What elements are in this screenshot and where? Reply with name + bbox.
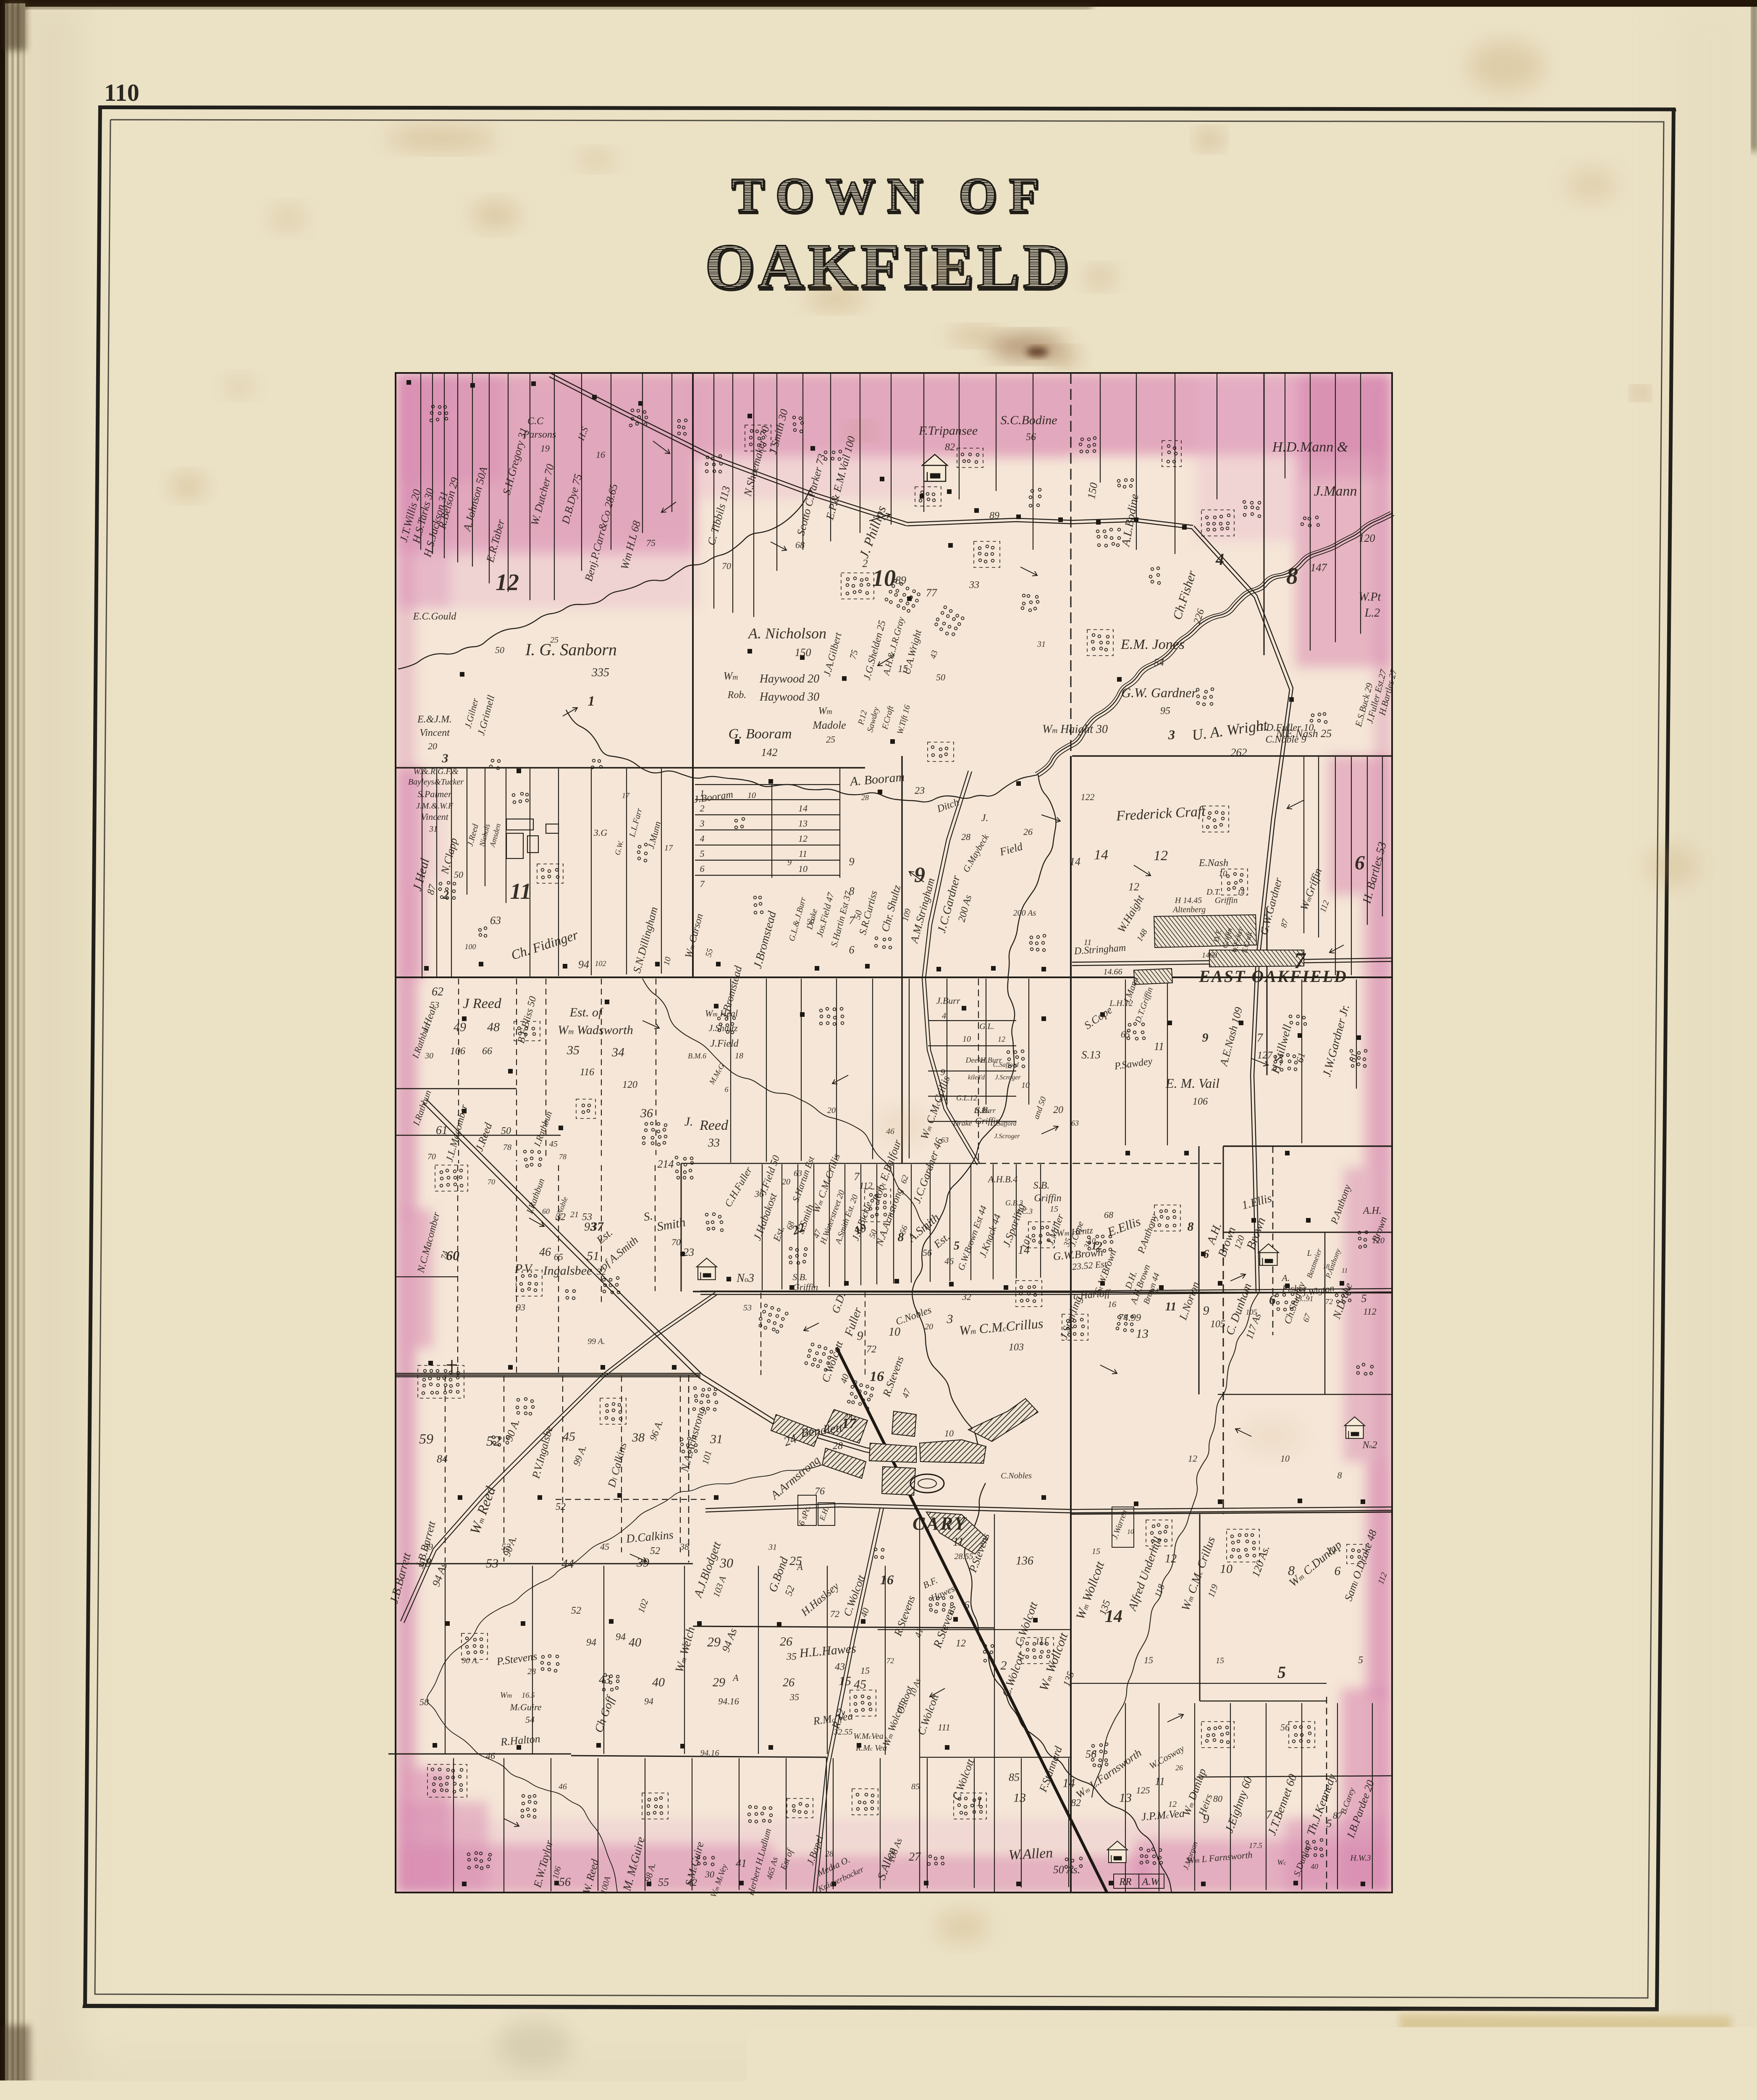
svg-text:13: 13	[1136, 1327, 1149, 1341]
svg-text:31: 31	[1037, 640, 1046, 649]
svg-text:72: 72	[866, 1344, 876, 1355]
svg-text:C.Safford: C.Safford	[991, 1120, 1017, 1127]
svg-text:5: 5	[954, 1239, 960, 1252]
svg-text:54: 54	[1154, 657, 1164, 668]
svg-text:Drake: Drake	[953, 1119, 972, 1127]
svg-text:26: 26	[1023, 827, 1033, 837]
svg-text:36: 36	[640, 1106, 653, 1120]
svg-text:78: 78	[559, 1152, 566, 1161]
svg-text:J.Scroger: J.Scroger	[994, 1133, 1020, 1140]
svg-text:16.5: 16.5	[522, 1691, 535, 1699]
svg-text:W.McVea: W.McVea	[853, 1732, 884, 1741]
svg-text:30: 30	[705, 1869, 714, 1879]
svg-text:40: 40	[1311, 1862, 1318, 1871]
svg-text:10: 10	[1219, 869, 1227, 878]
svg-text:136: 136	[1016, 1554, 1033, 1567]
svg-text:14: 14	[1018, 1244, 1030, 1257]
svg-text:Griffin: Griffin	[1215, 896, 1238, 905]
svg-text:11: 11	[1154, 1040, 1164, 1053]
svg-text:G. Booram: G. Booram	[728, 726, 792, 742]
svg-text:12: 12	[1165, 1552, 1177, 1565]
svg-text:14: 14	[1062, 1776, 1075, 1790]
svg-text:10: 10	[1220, 1562, 1233, 1576]
svg-text:11: 11	[1155, 1775, 1165, 1788]
svg-text:72: 72	[830, 1609, 839, 1619]
svg-text:E.M. Jones: E.M. Jones	[1120, 637, 1185, 652]
svg-text:94: 94	[578, 958, 589, 971]
svg-text:56: 56	[1280, 1722, 1290, 1732]
svg-text:90 A.: 90 A.	[462, 1656, 479, 1665]
svg-text:25: 25	[826, 734, 835, 745]
svg-text:3: 3	[1168, 727, 1175, 742]
svg-text:Parsons: Parsons	[523, 429, 556, 440]
svg-text:Wm: Wm	[818, 706, 832, 717]
svg-text:23: 23	[683, 1246, 694, 1258]
svg-text:14: 14	[1237, 888, 1245, 896]
svg-text:44: 44	[1151, 1287, 1159, 1295]
svg-text:59: 59	[419, 1431, 433, 1447]
svg-text:26: 26	[1175, 1764, 1183, 1772]
svg-text:27: 27	[909, 1851, 921, 1864]
svg-text:S.C.Bodine: S.C.Bodine	[1001, 413, 1057, 427]
svg-text:52: 52	[571, 1605, 581, 1616]
svg-text:W.Pt: W.Pt	[1359, 591, 1382, 604]
svg-text:EAST OAKFIELD: EAST OAKFIELD	[1198, 967, 1348, 986]
svg-text:94: 94	[616, 1632, 626, 1643]
svg-text:Altenberg: Altenberg	[1172, 905, 1206, 914]
svg-text:142: 142	[761, 746, 778, 759]
svg-text:W.Allen: W.Allen	[1008, 1845, 1053, 1863]
svg-text:3: 3	[947, 1312, 953, 1326]
svg-text:E. M. Vail: E. M. Vail	[1165, 1076, 1219, 1091]
svg-text:15: 15	[839, 1674, 851, 1688]
svg-text:82: 82	[945, 442, 955, 453]
svg-text:80: 80	[1213, 1793, 1222, 1804]
svg-text:262: 262	[1231, 746, 1247, 759]
svg-text:4: 4	[1215, 550, 1224, 569]
svg-text:20: 20	[925, 1322, 933, 1331]
svg-text:14: 14	[798, 803, 808, 814]
svg-text:2: 2	[443, 889, 449, 902]
svg-text:I. G. Sanborn: I. G. Sanborn	[525, 640, 617, 659]
svg-text:55: 55	[658, 1876, 669, 1888]
svg-text:9: 9	[849, 856, 855, 868]
svg-text:44: 44	[561, 1557, 574, 1571]
svg-text:2: 2	[1001, 1659, 1007, 1672]
svg-text:46: 46	[486, 1751, 495, 1761]
svg-text:46: 46	[944, 1256, 954, 1266]
svg-text:18: 18	[735, 1051, 743, 1060]
svg-text:D.T.: D.T.	[1206, 887, 1221, 897]
svg-text:6: 6	[1355, 852, 1365, 874]
svg-text:12: 12	[1128, 881, 1139, 893]
svg-text:S.Palmer: S.Palmer	[417, 789, 452, 799]
svg-text:112: 112	[1363, 1306, 1376, 1317]
svg-text:56: 56	[923, 1247, 932, 1258]
svg-text:5: 5	[1327, 1817, 1332, 1830]
svg-text:150: 150	[795, 646, 811, 659]
svg-text:12: 12	[1154, 848, 1168, 864]
svg-text:53: 53	[486, 1557, 498, 1570]
svg-text:33: 33	[708, 1137, 720, 1150]
svg-text:OAKFIELD: OAKFIELD	[705, 231, 1073, 302]
svg-text:28: 28	[844, 1412, 852, 1422]
svg-text:61: 61	[436, 1124, 448, 1137]
svg-text:100: 100	[465, 942, 476, 951]
svg-text:11: 11	[510, 879, 531, 904]
svg-text:9: 9	[1202, 1031, 1209, 1045]
svg-text:120: 120	[622, 1079, 637, 1090]
svg-text:23: 23	[915, 785, 925, 796]
svg-text:20: 20	[428, 741, 437, 751]
svg-text:34: 34	[611, 1045, 624, 1059]
svg-text:78: 78	[503, 1143, 511, 1152]
svg-text:6: 6	[849, 944, 855, 956]
svg-text:125: 125	[1136, 1785, 1150, 1795]
svg-text:15: 15	[898, 664, 908, 675]
svg-text:49: 49	[454, 1020, 466, 1034]
svg-text:Bayleys&Tucker: Bayleys&Tucker	[408, 777, 464, 787]
svg-text:28: 28	[833, 1441, 843, 1452]
svg-text:Ingalsbee: Ingalsbee	[543, 1264, 593, 1278]
svg-text:37: 37	[590, 1220, 604, 1234]
svg-text:20: 20	[782, 1177, 790, 1186]
svg-text:70: 70	[671, 1237, 681, 1247]
svg-text:15: 15	[1216, 1656, 1224, 1665]
svg-text:6: 6	[725, 1085, 729, 1094]
svg-text:9: 9	[914, 863, 925, 887]
svg-text:6: 6	[1269, 1292, 1276, 1307]
svg-text:H.Burr: H.Burr	[973, 1106, 996, 1115]
svg-text:26: 26	[783, 1676, 795, 1689]
svg-text:J.Shultz: J.Shultz	[708, 1023, 737, 1033]
svg-text:56: 56	[1086, 1748, 1096, 1760]
svg-text:112: 112	[859, 1180, 872, 1191]
svg-text:54: 54	[525, 1714, 535, 1725]
svg-text:1: 1	[976, 1795, 983, 1809]
svg-text:66: 66	[482, 1046, 492, 1057]
svg-text:Griffin: Griffin	[793, 1282, 818, 1292]
svg-text:CARY: CARY	[913, 1513, 967, 1534]
svg-text:45: 45	[563, 1430, 575, 1444]
svg-text:kileYd: kileYd	[968, 1074, 985, 1081]
svg-text:12: 12	[1188, 1453, 1197, 1464]
svg-text:94.16: 94.16	[700, 1748, 719, 1758]
svg-text:29: 29	[713, 1675, 725, 1689]
svg-text:70: 70	[427, 1152, 436, 1161]
svg-text:48: 48	[487, 1020, 500, 1034]
svg-text:11: 11	[1327, 1546, 1337, 1557]
svg-text:335: 335	[591, 666, 609, 679]
svg-text:147: 147	[1311, 562, 1327, 574]
svg-text:38: 38	[679, 1541, 689, 1552]
svg-text:P.V.: P.V.	[514, 1262, 533, 1276]
svg-text:106: 106	[450, 1046, 465, 1057]
svg-text:72: 72	[886, 1656, 894, 1665]
svg-text:127: 127	[1257, 1050, 1273, 1061]
svg-text:Rob.: Rob.	[727, 690, 747, 701]
svg-text:15: 15	[1050, 1205, 1058, 1214]
svg-text:94: 94	[586, 1637, 596, 1648]
svg-text:J.C.3: J.C.3	[1017, 1207, 1033, 1215]
svg-text:31: 31	[710, 1432, 723, 1446]
svg-text:N.E.Nash 25: N.E.Nash 25	[1276, 727, 1332, 740]
svg-text:11: 11	[799, 848, 807, 859]
svg-text:B.M.6: B.M.6	[688, 1052, 706, 1060]
svg-text:TOWN OF: TOWN OF	[732, 168, 1051, 223]
svg-text:F.Tripansee: F.Tripansee	[918, 424, 978, 438]
svg-text:93: 93	[516, 1302, 525, 1312]
svg-text:11: 11	[953, 1536, 964, 1549]
svg-text:50: 50	[454, 869, 463, 880]
svg-text:120: 120	[1372, 1236, 1385, 1245]
svg-text:31: 31	[768, 1543, 777, 1552]
svg-text:35: 35	[786, 1651, 797, 1662]
svg-text:S.B.: S.B.	[1033, 1180, 1050, 1191]
svg-text:14: 14	[1105, 1607, 1122, 1626]
svg-text:50: 50	[807, 917, 814, 926]
svg-text:99 A.: 99 A.	[587, 1337, 605, 1346]
svg-text:68: 68	[1104, 1210, 1113, 1220]
svg-text:32: 32	[555, 1212, 566, 1223]
svg-text:J.Scroger: J.Scroger	[995, 1074, 1021, 1081]
svg-text:15: 15	[860, 1665, 870, 1676]
svg-text:19: 19	[540, 443, 550, 454]
svg-text:16: 16	[1108, 1300, 1116, 1309]
svg-text:28: 28	[825, 1849, 834, 1858]
svg-text:84: 84	[437, 1453, 448, 1465]
svg-text:Haywood 30: Haywood 30	[759, 690, 819, 703]
svg-text:29: 29	[707, 1634, 721, 1649]
svg-text:40: 40	[629, 1635, 641, 1649]
svg-text:RR: RR	[1119, 1877, 1132, 1887]
svg-text:105: 105	[1246, 1308, 1257, 1316]
svg-text:5: 5	[1361, 1292, 1367, 1305]
svg-text:A.: A.	[1281, 1273, 1290, 1283]
svg-text:H.D.Mann &: H.D.Mann &	[1272, 439, 1348, 455]
svg-text:Wm Heal: Wm Heal	[705, 1008, 738, 1018]
svg-text:58: 58	[420, 1697, 429, 1707]
svg-text:59: 59	[424, 1541, 433, 1552]
svg-text:53: 53	[743, 1303, 752, 1312]
svg-text:2: 2	[863, 557, 868, 570]
svg-text:4: 4	[942, 1011, 946, 1021]
svg-text:G.L.12: G.L.12	[956, 1094, 977, 1102]
svg-text:35: 35	[789, 1692, 799, 1702]
svg-text:21: 21	[939, 1092, 949, 1102]
svg-text:62: 62	[432, 985, 443, 998]
svg-text:38: 38	[632, 1431, 645, 1444]
svg-text:72: 72	[1325, 1297, 1333, 1306]
svg-text:65: 65	[554, 1252, 563, 1262]
svg-text:15: 15	[1144, 1655, 1153, 1665]
svg-text:3: 3	[442, 751, 448, 765]
svg-text:L: L	[1306, 1249, 1311, 1258]
svg-text:14: 14	[1070, 856, 1080, 868]
svg-text:A.H.: A.H.	[1362, 1205, 1382, 1216]
svg-text:10: 10	[1280, 1453, 1290, 1464]
svg-text:11: 11	[1342, 1267, 1348, 1274]
svg-text:12: 12	[798, 833, 808, 844]
svg-text:E.&J.M.: E.&J.M.	[417, 714, 452, 725]
svg-text:85: 85	[911, 1782, 920, 1791]
svg-text:25: 25	[550, 635, 559, 645]
svg-text:77: 77	[926, 587, 937, 599]
svg-text:J.Burr: J.Burr	[936, 995, 960, 1006]
svg-text:105: 105	[1210, 1319, 1225, 1330]
svg-text:110: 110	[104, 79, 139, 106]
svg-text:13: 13	[1119, 1791, 1132, 1805]
svg-text:3.G: 3.G	[593, 827, 608, 838]
svg-text:63: 63	[490, 914, 501, 927]
svg-text:9: 9	[941, 1067, 945, 1077]
svg-text:12: 12	[998, 1035, 1005, 1043]
svg-text:50: 50	[495, 645, 504, 655]
svg-text:1460: 1460	[1202, 951, 1217, 959]
svg-text:J Reed: J Reed	[463, 996, 502, 1011]
svg-text:9: 9	[1203, 1812, 1209, 1826]
svg-text:32: 32	[962, 1291, 971, 1302]
svg-text:12: 12	[1168, 1800, 1177, 1809]
svg-text:46: 46	[539, 1246, 551, 1259]
svg-text:63: 63	[1071, 1119, 1079, 1127]
svg-text:111: 111	[938, 1722, 950, 1732]
svg-text:10: 10	[944, 1428, 954, 1438]
svg-text:8: 8	[898, 1230, 904, 1244]
svg-text:J.M.&.W.F: J.M.&.W.F	[416, 801, 454, 811]
svg-text:Griffin: Griffin	[1034, 1193, 1061, 1204]
svg-text:J.: J.	[981, 813, 989, 824]
svg-text:30: 30	[719, 1555, 733, 1570]
svg-text:52: 52	[650, 1546, 660, 1557]
svg-text:10: 10	[798, 864, 808, 874]
svg-text:L.H.12: L.H.12	[1109, 999, 1133, 1008]
svg-text:13: 13	[798, 818, 808, 829]
svg-text:33: 33	[969, 580, 979, 591]
svg-text:10: 10	[1088, 1236, 1096, 1245]
svg-text:G.L.: G.L.	[979, 1022, 994, 1031]
svg-text:9: 9	[857, 1329, 863, 1343]
svg-text:14.66: 14.66	[1104, 967, 1122, 976]
svg-text:120: 120	[1359, 532, 1375, 544]
svg-text:Vincent: Vincent	[420, 727, 450, 738]
svg-text:70: 70	[488, 1178, 495, 1186]
svg-text:50: 50	[936, 672, 945, 682]
svg-text:10: 10	[889, 1326, 900, 1339]
svg-text:25: 25	[789, 1554, 802, 1568]
svg-text:S.B.: S.B.	[792, 1272, 807, 1282]
svg-text:10: 10	[1127, 1528, 1134, 1536]
svg-text:103: 103	[1009, 1342, 1024, 1353]
svg-text:74.99: 74.99	[1118, 1312, 1141, 1323]
svg-text:H.W.3: H.W.3	[1350, 1853, 1371, 1863]
svg-text:12: 12	[496, 570, 519, 596]
svg-text:28: 28	[527, 1667, 536, 1676]
svg-text:20: 20	[827, 1106, 836, 1115]
svg-text:A.W.: A.W.	[1141, 1877, 1161, 1887]
svg-text:Wm: Wm	[500, 1690, 512, 1700]
svg-text:45: 45	[600, 1541, 609, 1552]
svg-text:95: 95	[1160, 706, 1170, 717]
svg-text:41: 41	[736, 1857, 747, 1869]
svg-text:Est. of: Est. of	[569, 1005, 603, 1019]
svg-text:21: 21	[570, 1210, 579, 1219]
svg-text:17.5: 17.5	[1249, 1841, 1262, 1850]
svg-text:12: 12	[956, 1638, 966, 1649]
svg-text:Reed: Reed	[699, 1118, 729, 1133]
svg-text:20: 20	[1053, 1105, 1063, 1116]
svg-text:10: 10	[872, 565, 896, 591]
svg-text:16: 16	[596, 449, 605, 460]
svg-text:17: 17	[622, 791, 630, 800]
svg-text:9: 9	[787, 858, 792, 867]
svg-text:A. Nicholson: A. Nicholson	[747, 625, 826, 642]
svg-text:35: 35	[566, 1043, 580, 1057]
svg-text:51: 51	[587, 1249, 599, 1263]
svg-text:10: 10	[747, 791, 756, 800]
svg-text:40: 40	[652, 1675, 665, 1689]
svg-text:9: 9	[1203, 1304, 1209, 1318]
svg-text:31: 31	[429, 824, 438, 834]
svg-text:10: 10	[962, 1034, 971, 1044]
svg-text:8: 8	[1337, 1470, 1342, 1480]
svg-text:C.Safford: C.Safford	[993, 1061, 1019, 1068]
svg-text:Vincent: Vincent	[421, 811, 448, 822]
svg-text:63: 63	[941, 1136, 949, 1144]
svg-text:32: 32	[596, 1266, 606, 1277]
svg-text:A.H.B.4: A.H.B.4	[987, 1174, 1017, 1184]
svg-text:50: 50	[501, 1126, 511, 1137]
svg-text:C.C: C.C	[527, 416, 544, 427]
svg-text:43: 43	[835, 1662, 845, 1672]
svg-text:60: 60	[446, 1248, 459, 1263]
svg-text:H 14.45: H 14.45	[1175, 896, 1202, 905]
svg-text:15: 15	[1092, 1547, 1100, 1556]
svg-text:3: 3	[700, 818, 705, 829]
svg-text:102: 102	[595, 959, 606, 968]
svg-text:17: 17	[664, 843, 673, 853]
svg-text:11: 11	[1165, 1300, 1176, 1313]
svg-text:6: 6	[1335, 1564, 1341, 1578]
svg-text:McGuire: McGuire	[509, 1702, 541, 1712]
svg-text:G.B.3: G.B.3	[1005, 1199, 1023, 1207]
svg-text:E.Nash: E.Nash	[1198, 858, 1228, 869]
svg-text:52: 52	[501, 1541, 511, 1552]
svg-text:7: 7	[1257, 1032, 1263, 1045]
svg-text:94: 94	[644, 1696, 653, 1706]
svg-text:L.2: L.2	[1364, 606, 1380, 619]
svg-text:56: 56	[1026, 432, 1036, 443]
svg-text:6: 6	[700, 864, 705, 874]
svg-text:65: 65	[1121, 1029, 1130, 1039]
svg-text:Madole: Madole	[812, 719, 846, 731]
svg-text:68: 68	[795, 540, 805, 550]
svg-text:G.W. Gardner: G.W. Gardner	[1121, 685, 1197, 700]
svg-text:70: 70	[722, 561, 731, 571]
svg-text:52: 52	[556, 1501, 566, 1512]
svg-text:45: 45	[549, 1139, 558, 1149]
svg-text:7: 7	[700, 879, 705, 889]
svg-text:J.Field: J.Field	[710, 1038, 739, 1049]
svg-text:6: 6	[964, 1599, 970, 1611]
svg-text:26: 26	[780, 1635, 792, 1648]
svg-text:W.&.R.G.F.&: W.&.R.G.F.&	[413, 767, 459, 776]
svg-text:45: 45	[854, 1677, 866, 1691]
svg-text:75: 75	[646, 538, 656, 548]
svg-text:6: 6	[1203, 1248, 1209, 1261]
svg-text:8: 8	[1286, 563, 1298, 589]
svg-text:200 As: 200 As	[1013, 908, 1036, 918]
